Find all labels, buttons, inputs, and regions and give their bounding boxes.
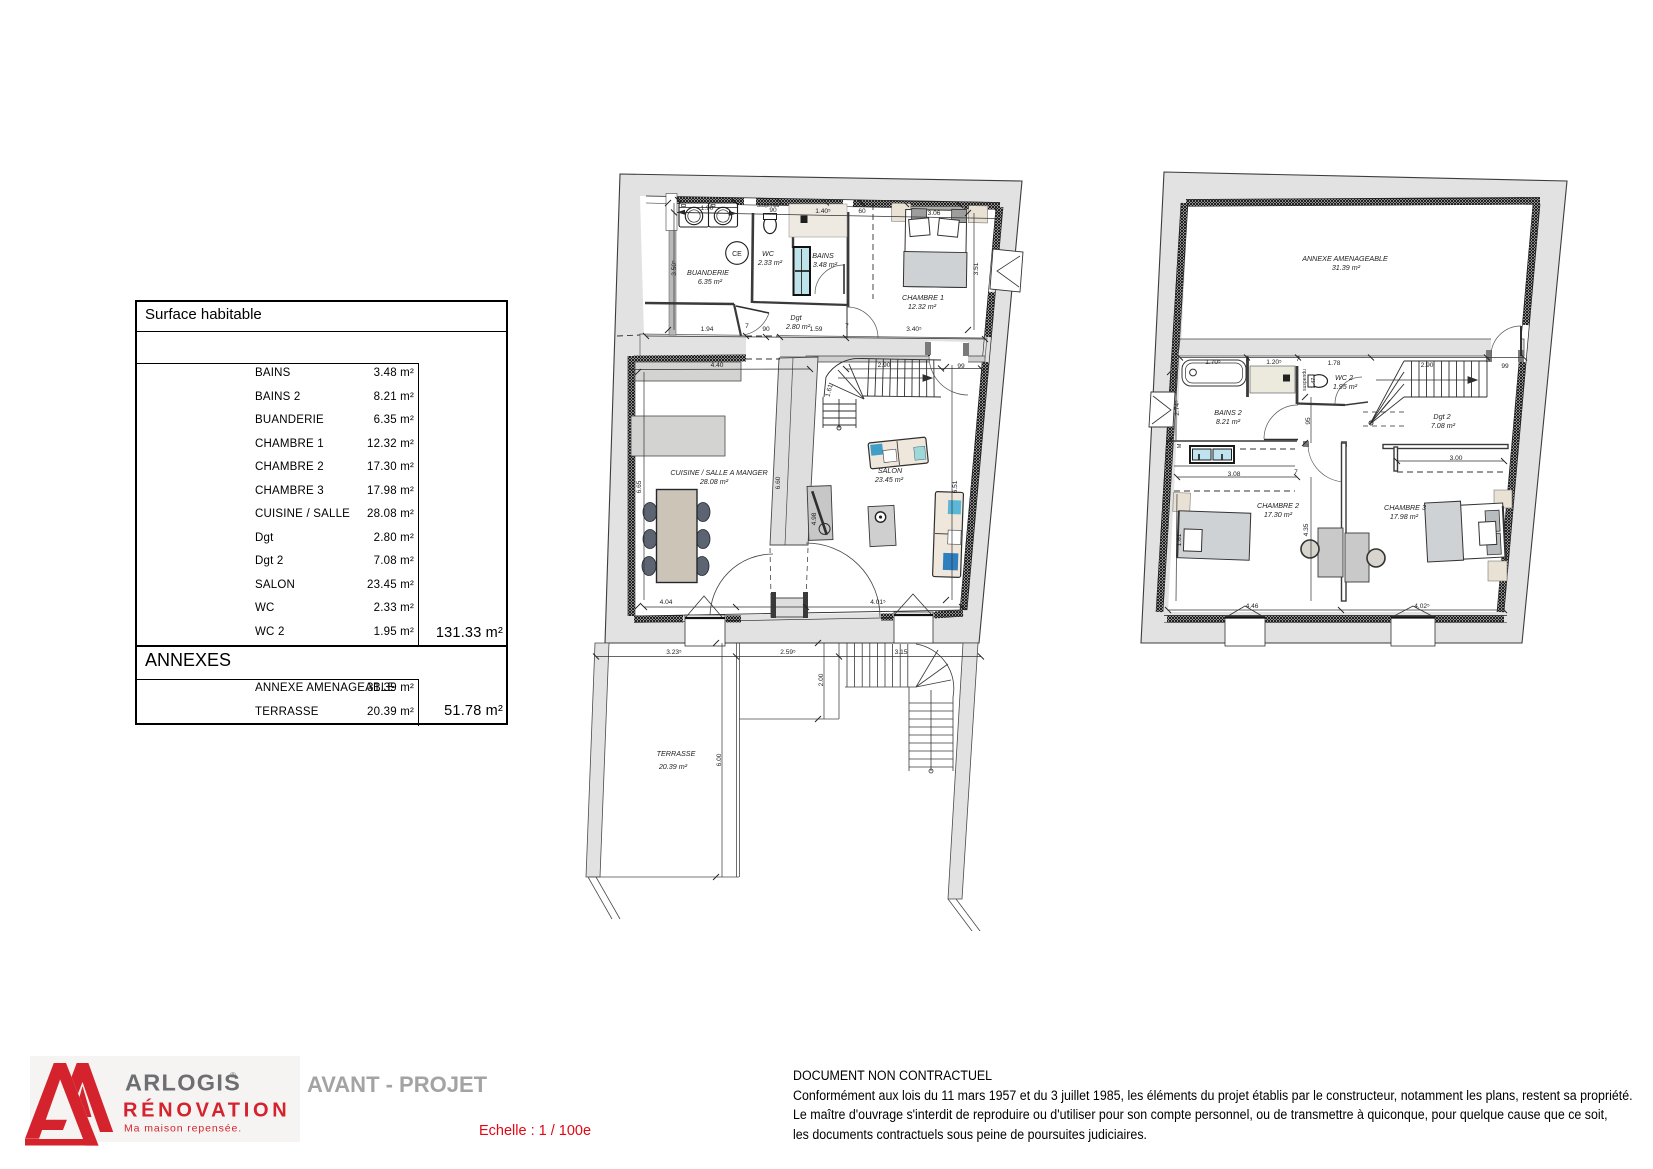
svg-text:1.70⁵: 1.70⁵ [1205,359,1221,366]
svg-text:3.15: 3.15 [895,649,908,656]
svg-text:1.95 m²: 1.95 m² [1333,382,1358,391]
svg-text:4.35: 4.35 [1303,523,1310,536]
svg-text:Dgt 2: Dgt 2 [1433,412,1450,421]
svg-text:6.60: 6.60 [775,476,782,489]
svg-text:20.39 m²: 20.39 m² [658,762,688,771]
svg-text:TERRASSE: TERRASSE [657,749,696,758]
svg-text:60: 60 [858,208,866,215]
svg-text:1.59: 1.59 [810,326,823,333]
svg-text:BAINS 2: BAINS 2 [1214,408,1242,417]
svg-text:4.46: 4.46 [1246,603,1259,610]
svg-text:90: 90 [769,207,777,214]
svg-text:7: 7 [745,323,749,330]
svg-text:6.65: 6.65 [636,480,643,493]
svg-text:2.74⁵: 2.74⁵ [1174,400,1181,416]
svg-text:CHAMBRE 3: CHAMBRE 3 [1384,503,1426,512]
svg-text:CE: CE [732,251,742,258]
svg-text:23.45 m²: 23.45 m² [874,475,904,484]
svg-text:WC: WC [762,249,775,258]
svg-text:6.51: 6.51 [952,480,959,493]
svg-text:CHAMBRE 2: CHAMBRE 2 [1257,501,1299,510]
svg-text:3.23⁵: 3.23⁵ [666,649,682,656]
svg-text:99: 99 [957,363,965,370]
svg-text:7: 7 [845,323,849,330]
svg-text:1.78: 1.78 [1328,360,1341,367]
svg-text:2.90: 2.90 [878,362,891,369]
svg-text:3.50⁵: 3.50⁵ [671,260,678,276]
svg-text:CUISINE / SALLE A MANGER: CUISINE / SALLE A MANGER [670,468,767,477]
svg-text:1.94: 1.94 [701,326,714,333]
svg-text:Dgt: Dgt [790,313,802,322]
svg-text:M: M [1177,443,1183,448]
svg-text:1.90: 1.90 [701,205,714,212]
svg-text:SALON: SALON [878,466,903,475]
svg-text:1.81: 1.81 [1176,533,1183,546]
svg-text:2.59⁵: 2.59⁵ [780,649,796,656]
svg-text:12.32 m²: 12.32 m² [908,302,937,311]
svg-text:Ma maison repensée.: Ma maison repensée. [124,1123,242,1135]
svg-text:6.35 m²: 6.35 m² [698,277,723,286]
svg-text:CHAMBRE 1: CHAMBRE 1 [902,293,944,302]
svg-text:4.98: 4.98 [811,512,818,525]
svg-text:8.21 m²: 8.21 m² [1216,417,1241,426]
svg-text:BUANDERIE: BUANDERIE [687,268,729,277]
svg-text:1.47: 1.47 [1311,378,1317,389]
svg-text:4.04: 4.04 [660,599,673,606]
svg-text:4.40: 4.40 [711,362,724,369]
svg-text:3.40⁵: 3.40⁵ [906,326,922,333]
svg-text:2.80 m²: 2.80 m² [785,322,811,331]
svg-text:RÉNOVATION: RÉNOVATION [123,1099,290,1122]
svg-text:1.20⁵: 1.20⁵ [1266,359,1282,366]
svg-text:90: 90 [762,326,770,333]
svg-text:17.30 m²: 17.30 m² [1264,510,1293,519]
svg-text:3.06: 3.06 [928,210,941,217]
svg-text:BAINS: BAINS [812,251,834,260]
svg-text:28.08 m²: 28.08 m² [699,477,729,486]
svg-text:1.40⁵: 1.40⁵ [815,208,831,215]
svg-text:4.01⁵: 4.01⁵ [870,599,886,606]
svg-text:®: ® [230,1071,236,1080]
svg-text:ARLOGIS: ARLOGIS [125,1070,241,1096]
svg-text:4.02⁵: 4.02⁵ [1414,603,1430,610]
svg-text:ANNEXE AMENAGEABLE: ANNEXE AMENAGEABLE [1301,254,1388,263]
svg-text:7.08 m²: 7.08 m² [1431,421,1456,430]
svg-text:WC 2: WC 2 [1335,373,1353,382]
svg-text:99: 99 [1501,363,1509,370]
svg-text:2.90: 2.90 [1421,362,1434,369]
svg-text:2.33 m²: 2.33 m² [757,258,783,267]
svg-text:suspendu: suspendu [1302,369,1308,391]
svg-text:31.39 m²: 31.39 m² [1332,263,1361,272]
svg-text:17.98 m²: 17.98 m² [1390,512,1419,521]
svg-text:3.48 m²: 3.48 m² [813,260,838,269]
